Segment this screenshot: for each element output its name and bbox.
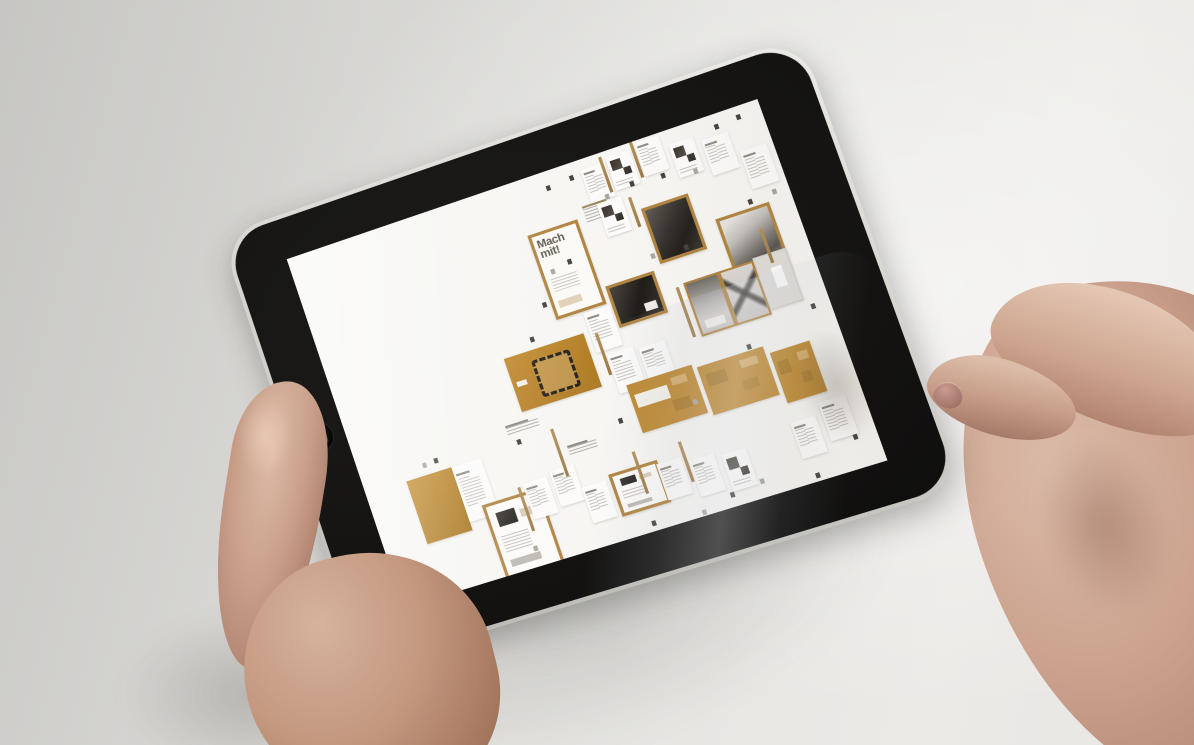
photo-scene: Mach mit!: [0, 0, 1194, 745]
right-thumb-group: [0, 0, 1194, 745]
